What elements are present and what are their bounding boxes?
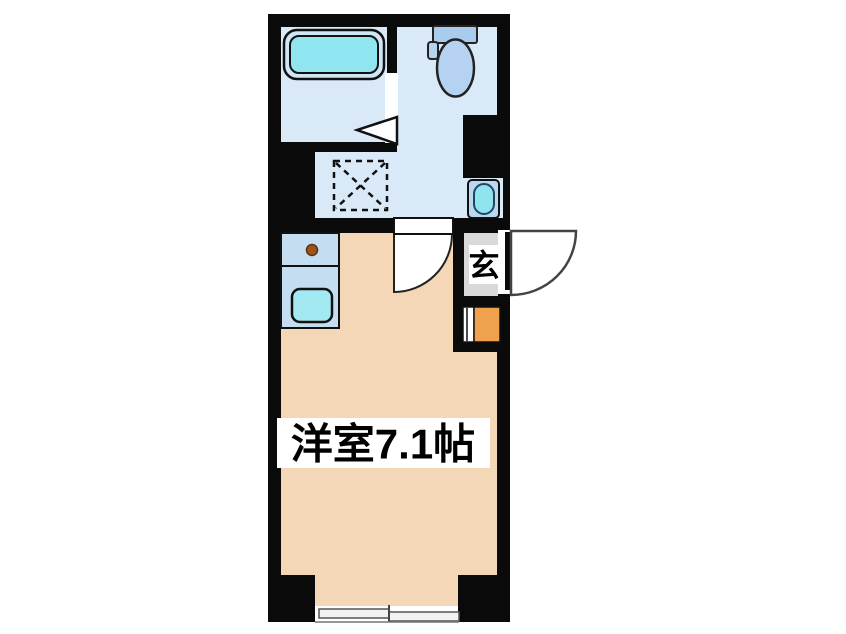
bathtub-water-icon [290,36,378,73]
entrance-label: 玄 [469,249,500,284]
stove-burner-icon [307,245,318,256]
toilet-bowl-icon [437,40,474,97]
room-door-panel [394,218,453,234]
entrance-door-swing-icon [511,231,576,295]
shoe-cabinet-door [463,307,474,342]
floor-plan-page: 玄 洋室7.1帖 [0,0,846,634]
shoe-cabinet-icon [474,307,500,342]
wash-basin-bowl-icon [474,184,494,214]
toilet-corridor-floor [397,115,463,152]
sliding-window-icon [315,605,459,622]
toilet-handle-icon [428,42,438,59]
floor-plan-canvas: 玄 洋室7.1帖 [0,0,846,634]
main-room-floor-bay [315,575,458,610]
kitchen-sink-icon [292,289,332,322]
room-label: 洋室7.1帖 [291,421,475,468]
